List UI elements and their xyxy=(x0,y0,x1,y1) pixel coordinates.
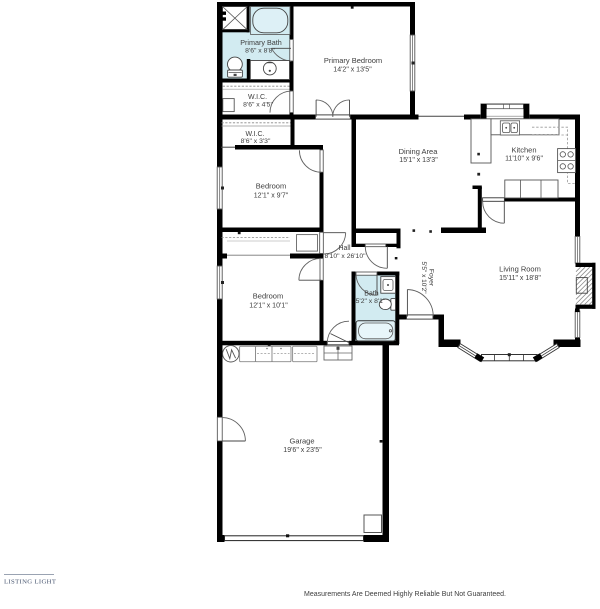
svg-text:12'1" x 10'1": 12'1" x 10'1" xyxy=(249,303,288,310)
svg-text:W.I.C.: W.I.C. xyxy=(248,94,267,101)
svg-text:Living Room: Living Room xyxy=(499,265,541,274)
svg-text:12'1" x 9'7": 12'1" x 9'7" xyxy=(254,193,289,200)
svg-text:8'6" x 3'3": 8'6" x 3'3" xyxy=(241,138,271,145)
svg-text:Bedroom: Bedroom xyxy=(253,292,283,301)
svg-text:19'6" x 23'5": 19'6" x 23'5" xyxy=(283,447,322,454)
svg-text:5'2" x 8'1": 5'2" x 8'1" xyxy=(356,298,386,305)
svg-text:8'6" x 8'8": 8'6" x 8'8" xyxy=(245,48,275,55)
svg-text:Kitchen: Kitchen xyxy=(511,146,536,155)
svg-text:Dining Area: Dining Area xyxy=(399,147,439,156)
svg-text:8'10" x 26'10": 8'10" x 26'10" xyxy=(324,253,366,260)
svg-text:Hall: Hall xyxy=(338,245,351,252)
svg-text:15'11" x 18'8": 15'11" x 18'8" xyxy=(499,275,541,282)
svg-text:8'6" x 4'5": 8'6" x 4'5" xyxy=(243,102,273,109)
svg-text:15'1" x 13'3": 15'1" x 13'3" xyxy=(399,157,438,164)
svg-text:W.I.C.: W.I.C. xyxy=(245,131,264,138)
svg-text:Bedroom: Bedroom xyxy=(256,182,286,191)
svg-text:Foyer: Foyer xyxy=(428,269,435,287)
svg-text:Bath: Bath xyxy=(364,291,379,298)
svg-text:LISTING LIGHT: LISTING LIGHT xyxy=(4,579,56,586)
svg-text:14'2" x 13'5": 14'2" x 13'5" xyxy=(333,67,372,74)
svg-text:Primary Bath: Primary Bath xyxy=(240,38,282,47)
svg-text:Measurements Are Deemed Highly: Measurements Are Deemed Highly Reliable … xyxy=(304,591,506,598)
svg-text:Garage: Garage xyxy=(289,437,314,446)
svg-text:Primary Bedroom: Primary Bedroom xyxy=(324,56,382,65)
svg-text:5'5" x 10'2": 5'5" x 10'2" xyxy=(420,261,427,294)
svg-text:11'10" x 9'6": 11'10" x 9'6" xyxy=(505,156,543,163)
